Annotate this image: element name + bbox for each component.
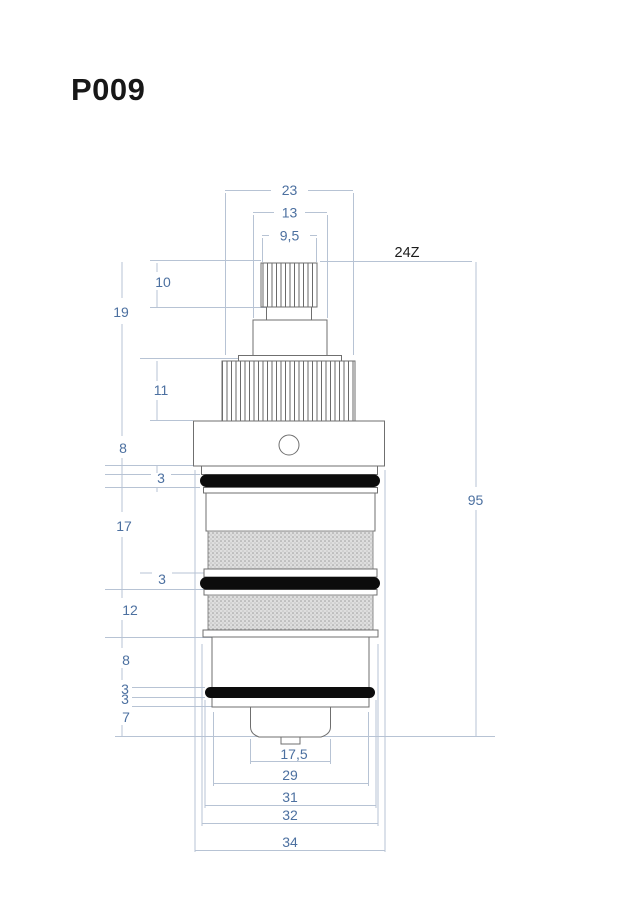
adjuster-knurl — [222, 361, 355, 421]
dim-label-3b: 3 — [158, 571, 166, 587]
spindle-neck — [267, 307, 312, 320]
dim-label-23: 23 — [282, 182, 298, 198]
dim-label-8b: 8 — [122, 652, 130, 668]
filter-mesh-1 — [208, 531, 373, 569]
groove-band-3 — [204, 590, 377, 596]
dim-label-11: 11 — [154, 382, 169, 398]
o-ring-3 — [205, 687, 375, 698]
filter-mesh-2 — [208, 595, 373, 630]
upper-block — [253, 320, 327, 358]
drawing-sheet: P009 — [0, 0, 640, 905]
dim-label-31: 31 — [282, 789, 298, 805]
dim-label-95: 95 — [468, 492, 484, 508]
groove-band-2 — [204, 569, 377, 577]
spline-count-label-24z: 24Z — [395, 245, 420, 261]
dim-label-17: 17 — [116, 518, 132, 534]
dim-label-3a: 3 — [157, 470, 165, 486]
dim-label-17-5: 17,5 — [280, 746, 307, 762]
part-number-title: P009 — [71, 72, 145, 108]
dim-label-10: 10 — [155, 274, 171, 290]
nozzle-tab — [281, 737, 300, 744]
o-ring-1 — [200, 475, 380, 488]
upper-sleeve — [206, 493, 375, 531]
dim-label-3d: 3 — [121, 691, 129, 707]
outlet-nozzle — [251, 707, 331, 737]
dim-label-12: 12 — [122, 602, 138, 618]
dim-label-7: 7 — [122, 709, 130, 725]
dim-label-9-5: 9,5 — [280, 228, 300, 244]
spindle-knurl — [261, 263, 317, 307]
dim-label-19: 19 — [113, 304, 129, 320]
upper-flange — [239, 356, 342, 362]
lower-flange — [203, 630, 378, 637]
housing-hole — [279, 435, 299, 455]
cartridge-technical-drawing: 23 13 9,5 24Z 95 10 19 11 8 3 17 3 12 8 … — [0, 0, 640, 905]
dim-label-34: 34 — [282, 834, 298, 850]
dim-label-8a: 8 — [119, 440, 127, 456]
dim-label-13: 13 — [282, 205, 298, 221]
groove-band-1 — [204, 488, 378, 494]
housing-lip — [202, 466, 378, 475]
cartridge-body — [194, 263, 385, 744]
dim-label-32: 32 — [282, 807, 298, 823]
dim-label-29: 29 — [282, 767, 298, 783]
o-ring-2 — [200, 577, 380, 590]
